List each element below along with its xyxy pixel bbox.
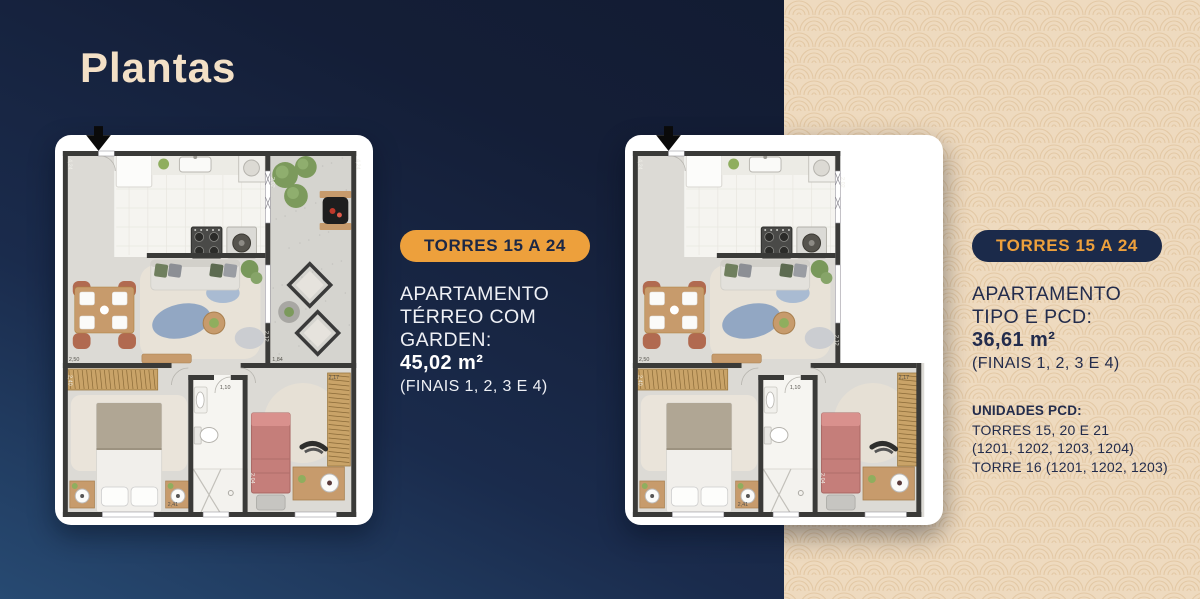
pcd-units-block: UNIDADES PCD: TORRES 15, 20 E 21 (1201, … <box>972 402 1200 476</box>
svg-text:2,04: 2,04 <box>249 473 255 484</box>
svg-text:2,02: 2,02 <box>269 177 275 188</box>
pcd-units-title: UNIDADES PCD: <box>972 402 1200 421</box>
floorplan-garden-image: 4,242,024,242,502,402,121,842,171,102,41… <box>55 135 373 525</box>
apartment-finais: (FINAIS 1, 2, 3 E 4) <box>972 353 1200 375</box>
floorplan-tipo-pcd-image: 4,242,022,502,402,122,171,102,412,04 <box>625 135 943 525</box>
svg-text:2,50: 2,50 <box>639 357 650 363</box>
towers-badge: TORRES 15 A 24 <box>972 230 1162 262</box>
svg-text:2,41: 2,41 <box>738 502 749 508</box>
svg-text:2,41: 2,41 <box>168 502 179 508</box>
apartment-area: 36,61 m² <box>972 329 1200 352</box>
apartment-area: 45,02 m² <box>400 352 630 375</box>
brochure-slide: Plantas 4,242,024,242,502,402,121,842,17… <box>0 0 1200 599</box>
apartment-description: APARTAMENTO TÉRREO COM GARDEN: 45,02 m² … <box>400 283 630 398</box>
svg-text:2,40: 2,40 <box>636 375 642 386</box>
svg-text:2,50: 2,50 <box>69 357 80 363</box>
svg-text:2,17: 2,17 <box>899 375 910 381</box>
entry-arrow-icon <box>85 126 112 151</box>
svg-text:1,84: 1,84 <box>272 357 283 363</box>
svg-text:1,10: 1,10 <box>220 385 231 391</box>
svg-text:2,12: 2,12 <box>263 331 269 342</box>
svg-text:2,02: 2,02 <box>839 177 845 188</box>
floorplan-card-tipo-pcd: 4,242,022,502,402,122,171,102,412,04 <box>625 135 943 525</box>
svg-text:1,10: 1,10 <box>790 385 801 391</box>
towers-badge: TORRES 15 A 24 <box>400 230 590 262</box>
apartment-finais: (FINAIS 1, 2, 3 E 4) <box>400 376 630 398</box>
svg-text:2,40: 2,40 <box>66 375 72 386</box>
svg-text:2,04: 2,04 <box>819 473 825 484</box>
svg-text:2,17: 2,17 <box>329 375 340 381</box>
floorplan-card-garden: 4,242,024,242,502,402,121,842,171,102,41… <box>55 135 373 525</box>
info-panel-garden: TORRES 15 A 24 APARTAMENTO TÉRREO COM GA… <box>400 230 630 398</box>
page-title: Plantas <box>80 44 236 92</box>
info-panel-tipo-pcd: TORRES 15 A 24 APARTAMENTO TIPO E PCD: 3… <box>972 230 1200 476</box>
svg-text:4,24: 4,24 <box>355 159 361 170</box>
svg-text:2,12: 2,12 <box>833 335 839 346</box>
apartment-description: APARTAMENTO TIPO E PCD: 36,61 m² (FINAIS… <box>972 283 1200 375</box>
entry-arrow-icon <box>655 126 682 151</box>
svg-text:4,24: 4,24 <box>66 159 72 170</box>
svg-text:4,24: 4,24 <box>636 159 642 170</box>
